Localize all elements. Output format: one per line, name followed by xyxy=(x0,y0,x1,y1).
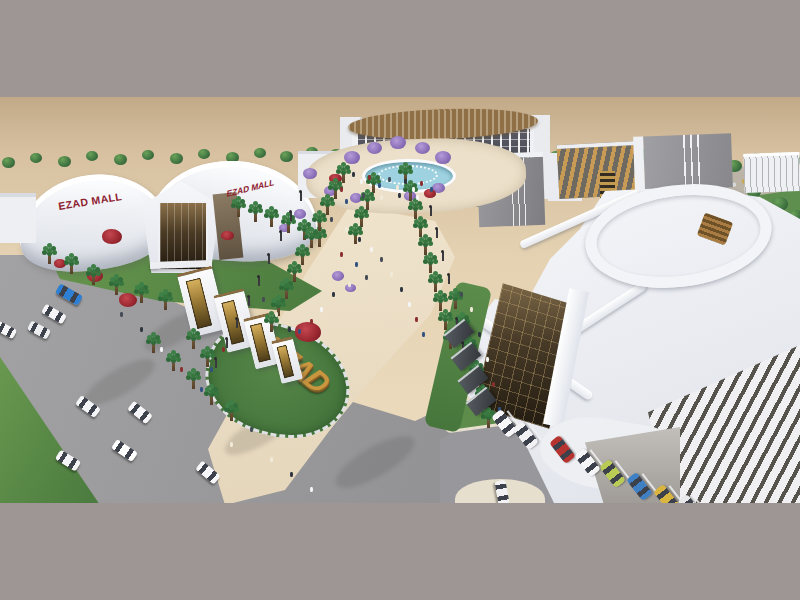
palm-tree xyxy=(48,252,51,264)
tree xyxy=(280,151,293,162)
pedestrian xyxy=(180,367,183,372)
pedestrian xyxy=(332,292,335,297)
pedestrian xyxy=(140,327,143,332)
pedestrian xyxy=(250,427,253,432)
palm-tree xyxy=(429,261,432,273)
pedestrian xyxy=(486,357,489,362)
gray-block-b xyxy=(633,133,733,190)
pedestrian xyxy=(396,185,399,190)
palm-tree xyxy=(372,181,375,193)
pedestrian xyxy=(298,329,301,334)
pedestrian xyxy=(262,297,265,302)
palm-tree xyxy=(192,337,195,349)
palm-tree xyxy=(285,287,288,299)
fountain-jets xyxy=(378,165,438,185)
red-flower-tree xyxy=(102,229,122,244)
purple-tree xyxy=(350,193,362,203)
palm-tree xyxy=(237,205,240,217)
pedestrian xyxy=(345,199,348,204)
palm-tree xyxy=(424,243,427,255)
pedestrian xyxy=(430,187,433,192)
pedestrian xyxy=(404,179,407,184)
palm-tree xyxy=(92,273,95,285)
red-flower-tree xyxy=(329,174,342,184)
pedestrian xyxy=(470,307,473,312)
pedestrian xyxy=(416,195,419,200)
palm-tree xyxy=(366,198,369,210)
tree xyxy=(254,148,266,158)
palm-tree xyxy=(152,341,155,353)
palm-tree xyxy=(270,215,273,227)
pedestrian xyxy=(398,193,401,198)
palm-tree xyxy=(318,219,321,231)
pedestrian xyxy=(288,327,291,332)
tree xyxy=(170,153,183,164)
lamp-post xyxy=(236,319,238,328)
pedestrian xyxy=(310,319,313,324)
palm-tree xyxy=(318,235,321,247)
pedestrian xyxy=(358,237,361,242)
pedestrian xyxy=(222,347,225,352)
pedestrian xyxy=(320,307,323,312)
red-flower-tree xyxy=(54,259,66,268)
palm-tree xyxy=(487,416,490,428)
palm-tree xyxy=(270,320,273,332)
palm-tree xyxy=(210,393,213,405)
lamp-post xyxy=(436,229,438,238)
palm-tree xyxy=(172,359,175,371)
pedestrian xyxy=(120,312,123,317)
palm-tree xyxy=(434,280,437,292)
lamp-post xyxy=(442,252,444,261)
pedestrian xyxy=(310,487,313,492)
pedestrian xyxy=(368,175,371,180)
lamp-post xyxy=(280,232,282,241)
palm-tree xyxy=(419,225,422,237)
purple-tree xyxy=(415,142,430,154)
lamp-post xyxy=(430,207,432,216)
pedestrian xyxy=(240,317,243,322)
pedestrian xyxy=(365,275,368,280)
palm-tree xyxy=(334,187,337,199)
tree xyxy=(30,153,42,163)
palm-tree xyxy=(230,409,233,421)
pedestrian xyxy=(340,187,343,192)
tree xyxy=(142,150,154,160)
tree xyxy=(86,151,98,161)
tree xyxy=(114,154,127,165)
lamp-post xyxy=(215,359,217,368)
pedestrian xyxy=(388,177,391,182)
tree xyxy=(2,157,15,168)
lamp-post xyxy=(226,339,228,348)
purple-tree xyxy=(367,142,382,154)
pedestrian xyxy=(380,257,383,262)
palm-tree xyxy=(303,228,306,240)
palm-tree xyxy=(310,236,313,248)
pedestrian xyxy=(400,287,403,292)
palm-tree xyxy=(414,207,417,219)
purple-tree xyxy=(435,151,451,164)
palm-tree xyxy=(342,171,345,183)
pedestrian xyxy=(380,195,383,200)
pedestrian xyxy=(340,252,343,257)
small-building-far-left xyxy=(0,193,36,243)
rendered-image: { "labels":{ "mall_sign_left":"EZAD MALL… xyxy=(0,0,800,600)
pedestrian xyxy=(390,272,393,277)
lamp-post xyxy=(300,192,302,201)
lamp-post xyxy=(268,255,270,264)
tree xyxy=(198,149,210,159)
palm-tree xyxy=(140,291,143,303)
pedestrian xyxy=(378,183,381,188)
palm-tree xyxy=(206,355,209,367)
pedestrian xyxy=(355,262,358,267)
pedestrian xyxy=(352,172,355,177)
palm-tree xyxy=(287,221,290,233)
pedestrian xyxy=(345,227,348,232)
pedestrian xyxy=(160,347,163,352)
red-flower-tree xyxy=(119,293,137,307)
palm-tree xyxy=(444,318,447,330)
palm-tree xyxy=(301,253,304,265)
tree xyxy=(58,156,71,167)
far-white-building xyxy=(743,152,800,193)
palm-tree xyxy=(439,299,442,311)
palm-tree xyxy=(360,215,363,227)
pedestrian xyxy=(478,332,481,337)
purple-tree xyxy=(294,209,306,219)
palm-tree xyxy=(164,298,167,310)
pedestrian xyxy=(492,382,495,387)
pedestrian xyxy=(415,317,418,322)
pedestrian xyxy=(275,312,278,317)
lamp-post xyxy=(448,275,450,284)
pedestrian xyxy=(422,332,425,337)
palm-tree xyxy=(254,210,257,222)
palm-tree xyxy=(326,203,329,215)
aerial-render: EZAD MALL EZAD MALL EZAD xyxy=(0,97,800,503)
pedestrian xyxy=(362,193,365,198)
pedestrian xyxy=(408,302,411,307)
pedestrian xyxy=(290,472,293,477)
pedestrian xyxy=(420,181,423,186)
pedestrian xyxy=(348,282,351,287)
palm-tree xyxy=(192,377,195,389)
pedestrian xyxy=(460,292,463,297)
pedestrian xyxy=(412,187,415,192)
palm-tree xyxy=(70,262,73,274)
pedestrian xyxy=(230,442,233,447)
palm-tree xyxy=(354,232,357,244)
lamp-post xyxy=(248,297,250,306)
pedestrian xyxy=(210,367,213,372)
red-flower-tree xyxy=(221,231,234,241)
lamp-post xyxy=(290,212,292,221)
purple-tree xyxy=(332,271,344,281)
palm-tree xyxy=(115,283,118,295)
pedestrian xyxy=(270,457,273,462)
purple-tree xyxy=(344,151,360,164)
palm-tree xyxy=(293,270,296,282)
pedestrian xyxy=(370,247,373,252)
purple-tree xyxy=(390,136,406,149)
pedestrian xyxy=(330,217,333,222)
palm-tree xyxy=(454,297,457,309)
lamp-post xyxy=(258,277,260,286)
pedestrian xyxy=(360,179,363,184)
pedestrian xyxy=(200,387,203,392)
